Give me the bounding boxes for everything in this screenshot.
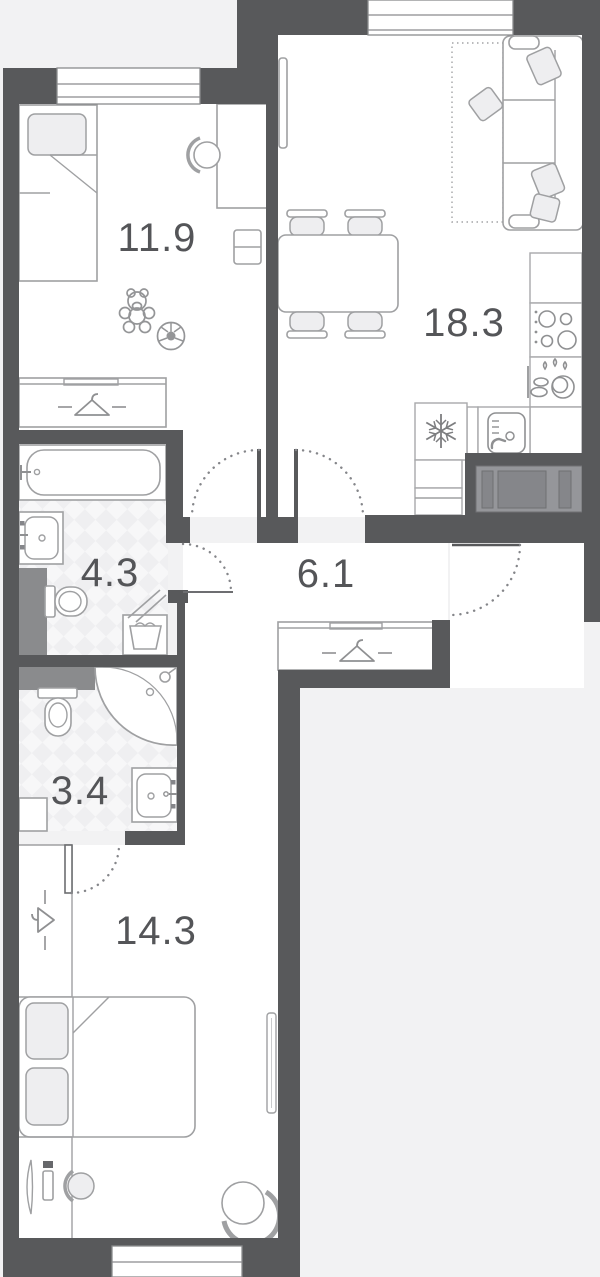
closet-icon <box>19 378 166 427</box>
stool-icon <box>68 1173 94 1199</box>
tv-icon <box>279 58 287 148</box>
kids-window-icon <box>57 68 200 104</box>
label-living-kitchen: 18.3 <box>423 301 505 345</box>
wash-basin-icon <box>132 768 177 822</box>
label-bedroom: 14.3 <box>115 909 197 953</box>
shaft <box>19 568 47 655</box>
label-shower-room: 3.4 <box>51 769 110 813</box>
vent-shaft <box>465 453 600 517</box>
living-window-icon <box>368 0 513 35</box>
cabinet-icon <box>19 798 47 831</box>
floor-plan: 11.9 18.3 4.3 6.1 3.4 14.3 <box>0 0 600 1277</box>
shaft <box>19 667 95 690</box>
hall-wardrobe-icon <box>278 622 433 670</box>
single-bed-icon <box>19 105 97 281</box>
wash-basin-icon <box>19 512 63 564</box>
label-hallway: 6.1 <box>297 552 356 596</box>
cooktop-icon <box>530 303 582 357</box>
floor-plan-canvas: 11.9 18.3 4.3 6.1 3.4 14.3 <box>0 0 600 1277</box>
double-bed-icon <box>19 997 195 1137</box>
bedroom-window-icon <box>112 1246 242 1277</box>
bathtub-icon <box>19 445 166 500</box>
cabinet-icon <box>234 230 261 264</box>
label-kids-bedroom: 11.9 <box>118 216 197 260</box>
label-bathroom: 4.3 <box>81 551 140 595</box>
soccer-ball-icon <box>158 323 185 350</box>
